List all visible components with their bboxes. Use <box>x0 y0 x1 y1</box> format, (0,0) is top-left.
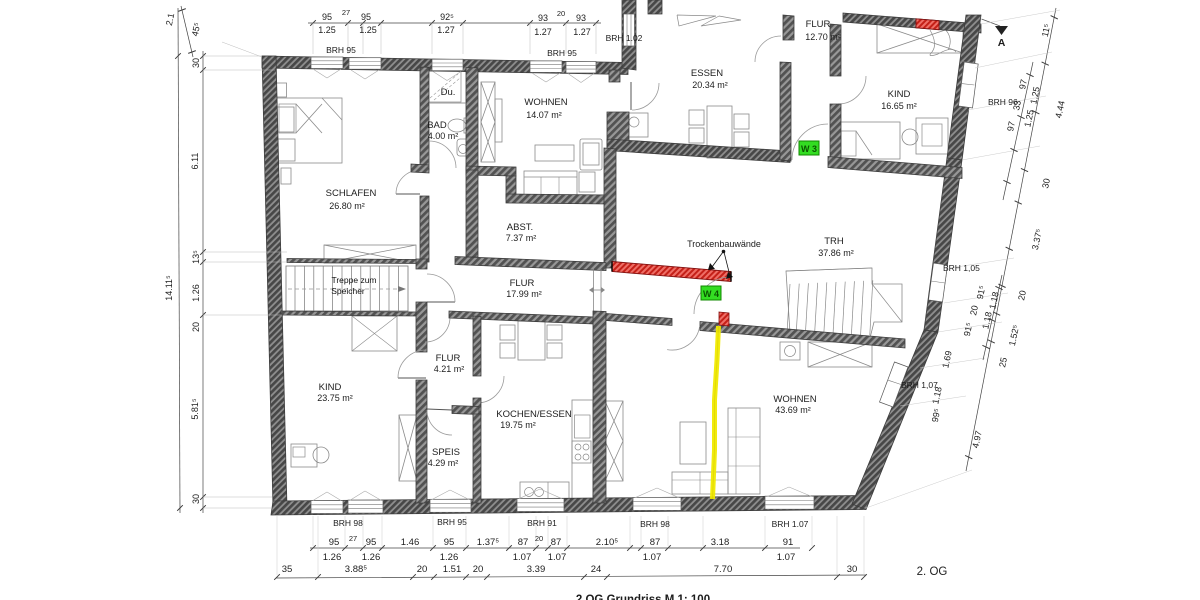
svg-text:1.27: 1.27 <box>573 27 591 37</box>
svg-text:W 4: W 4 <box>703 289 719 299</box>
svg-text:KIND: KIND <box>319 382 342 393</box>
svg-text:95: 95 <box>322 12 332 22</box>
svg-text:FLUR: FLUR <box>436 353 461 364</box>
svg-text:A: A <box>998 37 1006 49</box>
svg-text:19.75 m²: 19.75 m² <box>500 420 536 430</box>
svg-text:17.99 m²: 17.99 m² <box>506 289 542 299</box>
svg-text:BRH 95: BRH 95 <box>326 45 356 55</box>
svg-text:1.26: 1.26 <box>362 552 381 563</box>
svg-text:97: 97 <box>1017 78 1029 90</box>
svg-text:1.26: 1.26 <box>191 284 201 302</box>
svg-text:20: 20 <box>1016 289 1028 301</box>
svg-text:1.07: 1.07 <box>643 552 662 563</box>
svg-text:1.37⁵: 1.37⁵ <box>477 537 499 548</box>
svg-text:7.37 m²: 7.37 m² <box>506 233 537 243</box>
svg-text:SPEIS: SPEIS <box>432 447 460 458</box>
svg-text:BRH 98: BRH 98 <box>640 519 670 529</box>
svg-text:1.25: 1.25 <box>318 25 336 35</box>
svg-text:30: 30 <box>1040 177 1052 189</box>
svg-text:1.51: 1.51 <box>443 564 462 575</box>
svg-text:20: 20 <box>473 564 484 575</box>
svg-text:BRH 98: BRH 98 <box>333 518 363 528</box>
svg-text:20: 20 <box>968 304 980 316</box>
svg-text:1.46: 1.46 <box>401 537 420 548</box>
svg-text:BRH 1.07: BRH 1.07 <box>772 519 809 529</box>
svg-text:20: 20 <box>191 322 201 332</box>
svg-text:KOCHEN/ESSEN: KOCHEN/ESSEN <box>496 409 572 420</box>
svg-text:20: 20 <box>535 534 543 543</box>
svg-text:27: 27 <box>342 8 350 17</box>
svg-text:35: 35 <box>282 564 293 575</box>
svg-text:FLUR: FLUR <box>510 278 535 289</box>
svg-text:ESSEN: ESSEN <box>691 68 723 79</box>
svg-text:87: 87 <box>551 537 562 548</box>
svg-text:87: 87 <box>518 537 529 548</box>
svg-text:1.25: 1.25 <box>359 25 377 35</box>
svg-text:TRH: TRH <box>824 236 844 247</box>
svg-text:25: 25 <box>997 356 1009 368</box>
svg-text:SCHLAFEN: SCHLAFEN <box>326 188 377 199</box>
svg-text:4.29 m²: 4.29 m² <box>428 458 459 468</box>
svg-text:Trockenbauwände: Trockenbauwände <box>687 239 761 249</box>
svg-text:6.11: 6.11 <box>190 153 200 170</box>
svg-text:1.07: 1.07 <box>513 552 532 563</box>
svg-text:WOHNEN: WOHNEN <box>773 394 816 405</box>
svg-text:KIND: KIND <box>888 89 911 100</box>
svg-text:37.86 m²: 37.86 m² <box>818 248 854 258</box>
svg-text:W 3: W 3 <box>801 144 817 154</box>
svg-text:30: 30 <box>191 494 201 504</box>
svg-text:14.07 m²: 14.07 m² <box>526 110 562 120</box>
svg-text:14.11⁵: 14.11⁵ <box>164 275 174 301</box>
svg-text:1.27: 1.27 <box>534 27 552 37</box>
svg-text:24: 24 <box>591 564 602 575</box>
svg-text:BRH 96: BRH 96 <box>988 97 1018 107</box>
svg-text:2. OG: 2. OG <box>917 566 948 578</box>
svg-text:91: 91 <box>783 537 794 548</box>
svg-text:BRH 1,05: BRH 1,05 <box>943 263 980 273</box>
svg-text:Du.: Du. <box>441 87 456 98</box>
svg-text:95: 95 <box>329 537 340 548</box>
svg-text:13⁵: 13⁵ <box>191 250 201 264</box>
svg-text:WOHNEN: WOHNEN <box>524 97 567 108</box>
svg-text:4.21 m²: 4.21 m² <box>434 364 465 374</box>
svg-text:16.65 m²: 16.65 m² <box>881 101 917 111</box>
svg-text:Treppe zum: Treppe zum <box>331 275 376 285</box>
svg-text:20: 20 <box>417 564 428 575</box>
svg-text:95: 95 <box>361 12 371 22</box>
svg-text:93: 93 <box>576 13 586 23</box>
svg-text:1.07: 1.07 <box>777 552 796 563</box>
svg-text:1.26: 1.26 <box>323 552 342 563</box>
svg-text:FLUR: FLUR <box>806 19 831 30</box>
svg-text:2.OG Grundriss M 1: 100: 2.OG Grundriss M 1: 100 <box>576 594 710 600</box>
svg-text:3.18: 3.18 <box>711 537 730 548</box>
svg-text:BRH 1.02: BRH 1.02 <box>606 33 643 43</box>
svg-text:27: 27 <box>349 534 357 543</box>
svg-text:3.88⁵: 3.88⁵ <box>345 564 367 575</box>
svg-text:26.80 m²: 26.80 m² <box>329 201 365 211</box>
svg-text:92⁵: 92⁵ <box>440 12 454 22</box>
svg-text:ABST.: ABST. <box>507 222 533 233</box>
svg-text:20: 20 <box>557 9 565 18</box>
svg-text:95: 95 <box>444 537 455 548</box>
svg-text:5.81⁵: 5.81⁵ <box>190 398 200 420</box>
svg-text:BRH 95: BRH 95 <box>547 48 577 58</box>
svg-text:87: 87 <box>650 537 661 548</box>
svg-text:43.69 m²: 43.69 m² <box>775 405 811 415</box>
svg-text:1.07: 1.07 <box>548 552 567 563</box>
svg-text:3.39: 3.39 <box>527 564 546 575</box>
svg-text:7.70: 7.70 <box>714 564 733 575</box>
svg-text:30: 30 <box>191 58 201 68</box>
svg-text:1.26: 1.26 <box>440 552 459 563</box>
svg-text:93: 93 <box>538 13 548 23</box>
svg-text:BRH 1,07: BRH 1,07 <box>901 380 938 390</box>
svg-text:4.00 m²: 4.00 m² <box>428 131 459 141</box>
svg-text:95: 95 <box>366 537 377 548</box>
svg-text:Speicher: Speicher <box>331 286 365 296</box>
svg-text:20.34 m²: 20.34 m² <box>692 80 728 90</box>
svg-text:BAD: BAD <box>427 120 447 131</box>
svg-text:12.70 m²: 12.70 m² <box>805 32 841 42</box>
svg-text:BRH 91: BRH 91 <box>527 518 557 528</box>
svg-text:23.75 m²: 23.75 m² <box>317 393 353 403</box>
svg-text:1.27: 1.27 <box>437 25 455 35</box>
svg-text:30: 30 <box>847 564 858 575</box>
svg-text:2.10⁵: 2.10⁵ <box>596 537 618 548</box>
svg-text:97: 97 <box>1005 120 1017 132</box>
svg-text:BRH 95: BRH 95 <box>437 517 467 527</box>
